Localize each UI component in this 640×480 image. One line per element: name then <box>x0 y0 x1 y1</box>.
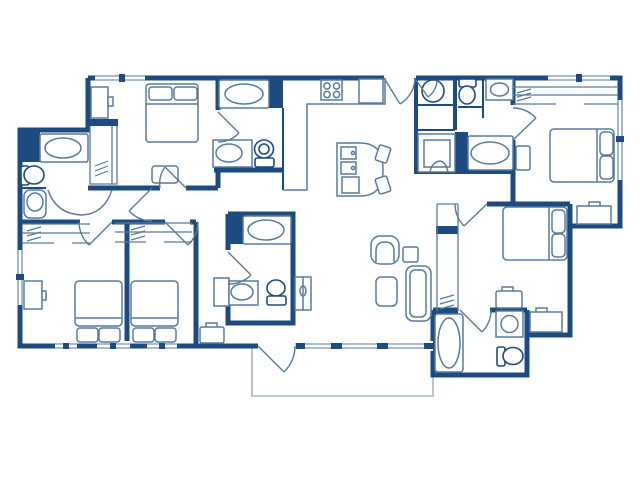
toilet-icon <box>21 166 44 185</box>
bathtub <box>468 136 513 170</box>
closet-bedroom-top-right <box>513 87 618 104</box>
dresser <box>530 312 562 332</box>
side-table <box>403 247 418 262</box>
vanity-alcove <box>200 278 229 343</box>
powder-area <box>422 79 513 104</box>
bedroomTR-door <box>513 108 536 140</box>
patio-door <box>258 346 295 372</box>
refrigerator-icon <box>359 79 383 103</box>
hanging-rod-icon <box>131 226 145 240</box>
place-setting <box>342 177 359 193</box>
coffee-table <box>376 277 397 306</box>
bathroom-top-center <box>213 80 274 167</box>
toilet-icon <box>497 347 523 366</box>
pillow <box>600 132 613 155</box>
bathA-door <box>218 112 239 142</box>
window-top-left <box>95 73 145 83</box>
dresser <box>91 87 108 118</box>
closet-bedroom-top-left <box>90 126 117 184</box>
hanging-rod-icon <box>95 161 108 176</box>
nightstand <box>496 291 522 308</box>
armchair <box>371 236 399 264</box>
bedroomMR-door <box>455 204 487 226</box>
pillow <box>600 156 613 179</box>
windows-living-room <box>295 341 433 351</box>
bed <box>75 281 122 326</box>
dining-area <box>337 143 391 196</box>
closet-MR-cap-top <box>436 226 458 234</box>
pillow <box>133 328 154 342</box>
hall-door <box>129 188 152 221</box>
dresser-knob <box>42 291 46 300</box>
bench <box>200 327 224 343</box>
wall-mass-bath-center <box>228 216 243 244</box>
pillow <box>77 328 98 342</box>
hall-double-doors <box>48 190 112 215</box>
utility-door <box>295 277 311 310</box>
pillow <box>155 328 176 342</box>
entry-door <box>384 78 415 104</box>
dresser-knob <box>108 97 113 106</box>
dresser <box>24 281 42 309</box>
round-sink <box>422 80 444 102</box>
stove-icon <box>321 80 342 100</box>
toilet-icon <box>459 79 476 104</box>
window-right <box>615 100 625 180</box>
nightstand <box>152 166 178 183</box>
dresser <box>577 206 611 224</box>
hanging-rod-icon <box>440 295 454 309</box>
toilet-icon <box>255 140 275 167</box>
dining-chair <box>375 176 391 195</box>
pillow <box>552 210 565 233</box>
pillow <box>99 328 120 342</box>
bathtub <box>435 314 463 372</box>
pedestal-sink-icon <box>24 190 46 218</box>
hanging-rod-icon <box>27 227 41 241</box>
dining-chair <box>375 145 391 164</box>
pillow <box>552 234 565 257</box>
bath-center-door <box>228 252 251 284</box>
place-setting <box>341 162 356 174</box>
closet-bedroom-mid-right <box>437 204 458 311</box>
toilet-icon <box>267 280 286 305</box>
bedroom-top-left <box>91 84 198 183</box>
pillow <box>174 87 197 100</box>
living-room <box>371 236 431 321</box>
cabinet <box>214 278 229 306</box>
nightstand <box>516 146 530 170</box>
place-setting <box>341 147 356 159</box>
wall-mass-bathB <box>455 132 468 172</box>
bedroom-bottom-center <box>131 281 178 342</box>
patio-outline <box>252 348 433 396</box>
bedroom-bottom-left <box>24 281 122 342</box>
bed <box>131 281 178 326</box>
closet-TL-cap <box>88 119 118 126</box>
bathroom-bottom-right <box>435 311 523 372</box>
floor-plan <box>0 0 640 480</box>
wall-mass-bathA <box>269 79 283 108</box>
floor-plan-canvas <box>0 0 640 480</box>
bathBR-door <box>460 310 491 332</box>
window-top-right <box>548 73 610 83</box>
pillow <box>149 87 172 100</box>
wall-mass-bath-left <box>20 132 40 162</box>
